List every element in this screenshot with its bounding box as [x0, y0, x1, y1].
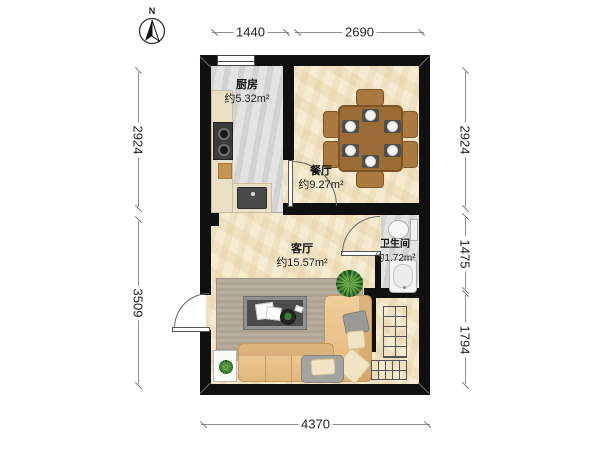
- dining-chair: [356, 89, 384, 106]
- dining-chair: [401, 141, 418, 168]
- stairs-lower-flight: [371, 360, 407, 380]
- throw-pillow: [346, 330, 366, 350]
- dimension-value: 4370: [298, 417, 333, 432]
- burner-icon: [218, 128, 230, 140]
- wall-kitchen-dining: [283, 55, 294, 160]
- burner-icon: [218, 144, 230, 156]
- dimension-value: 2924: [131, 122, 146, 157]
- toilet: [388, 220, 409, 239]
- plate-icon: [345, 121, 356, 132]
- compass-north-label: N: [136, 6, 168, 16]
- plate-icon: [387, 145, 398, 156]
- place-setting: [362, 109, 379, 122]
- stair-rail: [372, 370, 406, 371]
- bathroom-label: 卫生间 约1.72m²: [366, 238, 424, 266]
- ottoman-cushion: [311, 358, 336, 375]
- room-name: 客厅: [252, 242, 352, 256]
- dimension-right-lower: 1794: [457, 295, 473, 384]
- dimension-value: 1440: [233, 25, 268, 40]
- wall: [200, 55, 211, 295]
- dining-chair: [356, 171, 384, 188]
- room-area: 约5.32m²: [211, 92, 283, 106]
- dimension-right-upper: 2924: [457, 72, 473, 207]
- ottoman: [301, 355, 344, 383]
- cushion-seam: [265, 356, 266, 383]
- dimension-value: 2690: [342, 25, 377, 40]
- dimension-value: 1475: [458, 236, 473, 271]
- dimension-value: 1794: [458, 322, 473, 357]
- place-setting: [342, 144, 359, 157]
- kitchen-label: 厨房 约5.32m²: [211, 78, 283, 106]
- plate-icon: [365, 110, 376, 121]
- cushion-seam: [291, 356, 292, 383]
- stairs-upper-flight: [383, 306, 407, 358]
- dimension-top-right: 2690: [295, 24, 424, 40]
- dimension-value: 2924: [458, 122, 473, 157]
- plate-icon: [345, 145, 356, 156]
- small-plant: [219, 360, 233, 374]
- plate-icon: [387, 121, 398, 132]
- room-name: 厨房: [211, 78, 283, 92]
- place-setting: [342, 120, 359, 133]
- kitchen-sink: [237, 187, 267, 209]
- wall: [200, 330, 211, 395]
- bathtub-basin: [393, 264, 413, 288]
- room-area: 约1.72m²: [366, 252, 424, 266]
- dimension-right-middle: 1475: [457, 218, 473, 289]
- dimension-value: 3509: [131, 285, 146, 320]
- stair-rail: [395, 307, 396, 357]
- place-setting: [362, 155, 379, 168]
- stove: [213, 122, 233, 160]
- dining-label: 餐厅 约9.27m²: [283, 164, 359, 192]
- wall: [200, 384, 430, 395]
- dimension-left-upper: 2924: [130, 72, 146, 207]
- room-name: 餐厅: [283, 164, 359, 178]
- drain-icon: [403, 286, 406, 289]
- living-label: 客厅 约15.57m²: [252, 242, 352, 270]
- place-setting: [384, 144, 401, 157]
- coffee-table: [243, 296, 307, 330]
- plate-icon: [365, 156, 376, 167]
- dimension-left-lower: 3509: [130, 221, 146, 384]
- kitchen-window: [217, 55, 255, 66]
- compass: N: [136, 6, 168, 52]
- dimension-top-left: 1440: [212, 24, 289, 40]
- potted-plant: [336, 270, 363, 297]
- wall: [419, 55, 430, 395]
- room-area: 约9.27m²: [283, 178, 359, 192]
- room-name: 卫生间: [366, 238, 424, 252]
- place-setting: [384, 120, 401, 133]
- faucet-icon: [251, 192, 255, 196]
- room-area: 约15.57m²: [252, 256, 352, 270]
- compass-rose-icon: [138, 16, 166, 46]
- plant-stand: [213, 350, 237, 382]
- dimension-bottom: 4370: [201, 416, 430, 432]
- entry-door-swing: [174, 293, 209, 328]
- plant-bowl: [280, 309, 296, 325]
- dining-chair: [401, 111, 418, 138]
- cutting-board: [218, 163, 232, 179]
- floor-plan: N 1440 2690 2924 3509 2924 1475 1794 437…: [0, 0, 600, 450]
